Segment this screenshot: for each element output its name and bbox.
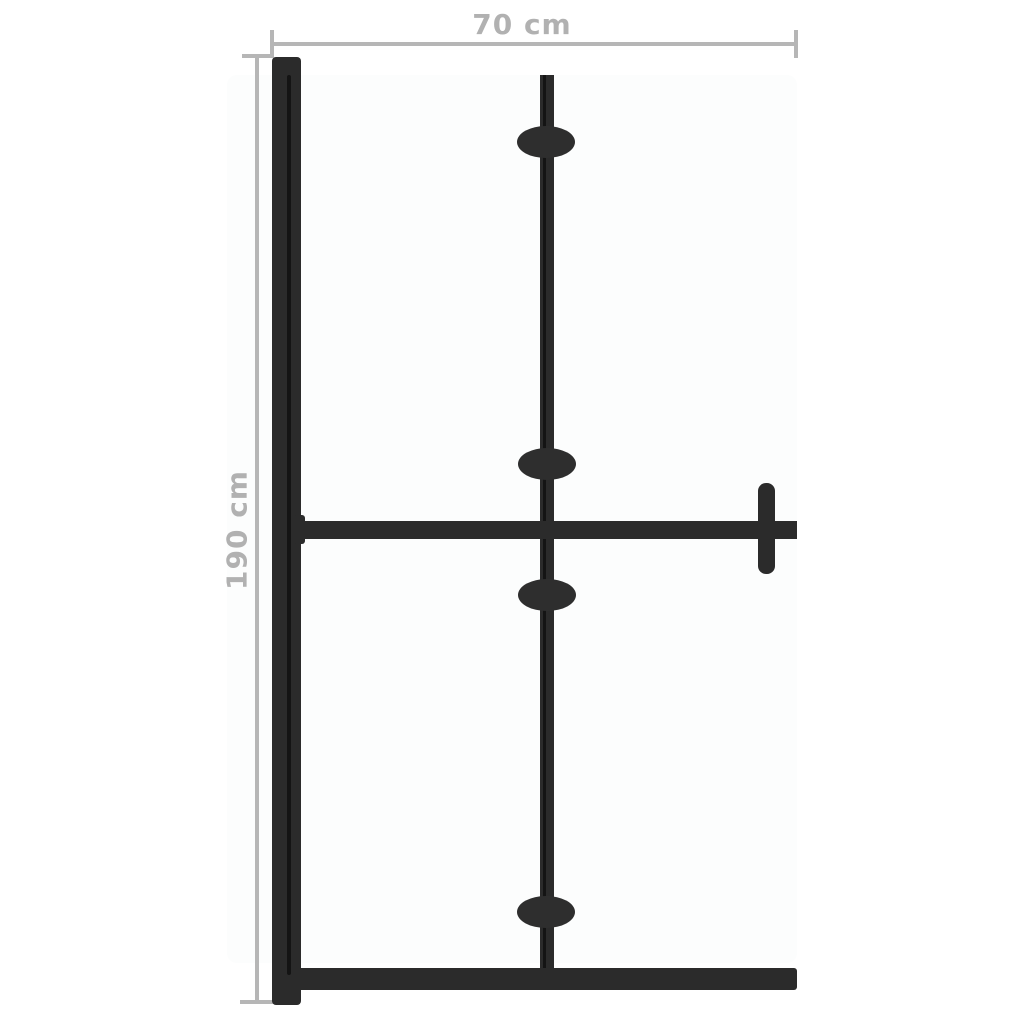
width-dimension-line	[272, 42, 797, 46]
hinge-upper-middle	[518, 448, 576, 480]
bottom-rail	[300, 968, 797, 990]
wall-profile-glass-edge	[287, 75, 291, 975]
height-dimension-tick-top	[242, 54, 273, 58]
width-dimension-tick-right	[794, 30, 798, 58]
hinge-bottom	[517, 896, 575, 928]
drawing-area	[227, 75, 797, 963]
width-dimension-label: 70 cm	[272, 8, 772, 41]
product-dimension-diagram: 70 cm 190 cm	[0, 0, 1024, 1024]
height-dimension-label: 190 cm	[221, 470, 254, 590]
height-dimension-line	[255, 56, 259, 1002]
hinge-top	[517, 126, 575, 158]
wall-bracket	[758, 483, 775, 574]
hinge-lower-middle	[518, 579, 576, 611]
support-bar	[300, 521, 797, 539]
height-dimension-tick-bottom	[240, 1000, 276, 1004]
